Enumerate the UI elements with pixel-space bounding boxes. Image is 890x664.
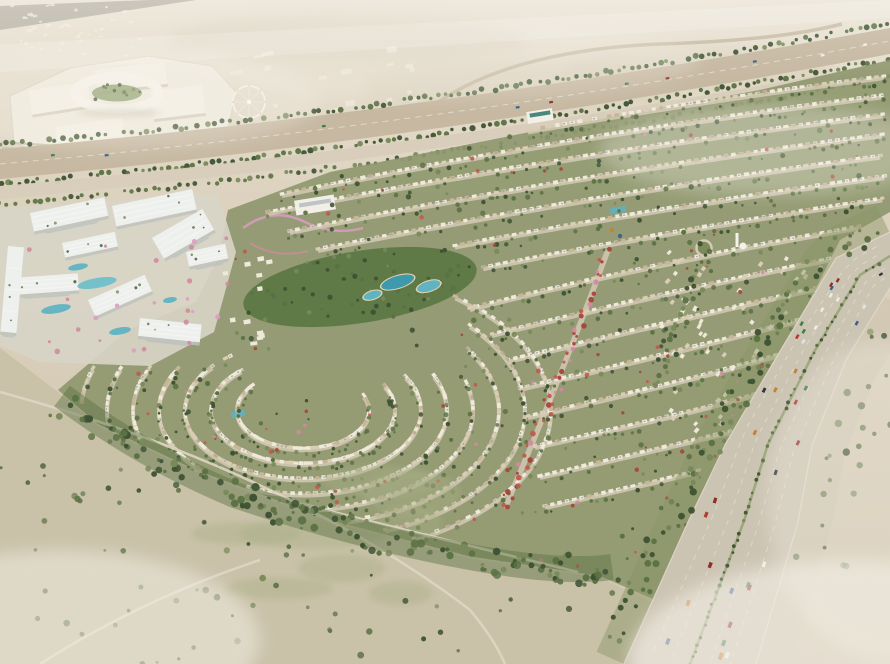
tree xyxy=(337,214,341,218)
tree xyxy=(528,474,533,479)
tree xyxy=(249,336,254,341)
tree xyxy=(656,269,660,273)
avenue-tree xyxy=(33,199,38,204)
tree xyxy=(103,549,106,552)
tree xyxy=(346,444,348,446)
tree xyxy=(529,562,535,568)
flowering-tree xyxy=(596,353,599,356)
villa-roof-detail xyxy=(866,200,868,202)
tree xyxy=(592,124,596,128)
villa xyxy=(633,189,638,193)
tree xyxy=(287,544,292,549)
tree xyxy=(357,200,361,204)
highway-tree xyxy=(374,101,380,107)
tree xyxy=(186,435,189,438)
tree xyxy=(596,316,601,321)
tree xyxy=(583,283,586,286)
tree xyxy=(287,237,290,240)
roadside-tree xyxy=(757,370,763,376)
tree xyxy=(565,552,572,559)
pink-tree xyxy=(132,348,136,352)
pink-tree xyxy=(76,327,81,332)
villa xyxy=(648,187,653,192)
tree xyxy=(625,367,629,371)
flowering-tree xyxy=(547,394,551,398)
tree xyxy=(457,649,460,652)
flowering-tree xyxy=(575,501,579,505)
tree xyxy=(203,475,208,480)
avenue-tree xyxy=(284,170,288,174)
roadside-tree xyxy=(848,234,852,238)
roadside-tree xyxy=(758,352,763,357)
villa xyxy=(323,460,328,464)
tree xyxy=(505,331,510,336)
highway-tree xyxy=(675,92,680,97)
tree xyxy=(470,419,474,423)
tree xyxy=(340,465,344,469)
villa xyxy=(725,95,730,100)
villa xyxy=(279,460,284,464)
tree xyxy=(505,338,507,340)
tree xyxy=(394,421,397,424)
median-tree xyxy=(732,544,736,548)
avenue-tree xyxy=(333,165,337,169)
spine-tree xyxy=(652,382,658,388)
tree xyxy=(609,404,613,408)
tree xyxy=(557,161,561,165)
tree xyxy=(253,441,256,444)
tree xyxy=(275,518,283,526)
tree xyxy=(575,580,583,588)
tree xyxy=(494,249,499,254)
highway-tree xyxy=(338,107,344,113)
tree xyxy=(231,500,239,508)
tree xyxy=(354,249,357,252)
tree xyxy=(293,196,296,199)
tree xyxy=(116,386,119,389)
avenue-tree xyxy=(324,165,328,169)
tree xyxy=(719,230,723,234)
highway-tree xyxy=(745,82,750,87)
tree xyxy=(527,299,531,303)
tree xyxy=(500,557,505,562)
tree xyxy=(515,155,518,158)
tree xyxy=(525,191,528,194)
tree xyxy=(211,417,214,420)
tree xyxy=(504,157,507,160)
villa xyxy=(637,210,642,215)
highway-tree xyxy=(96,173,100,177)
tree xyxy=(477,465,481,469)
tree xyxy=(407,173,411,177)
pink-tree xyxy=(186,297,190,301)
roadside-tree xyxy=(678,513,685,520)
highway-tree xyxy=(469,125,475,131)
roadside-tree xyxy=(720,401,725,406)
villa xyxy=(547,421,552,426)
flowering-tree xyxy=(476,169,480,173)
tree xyxy=(573,229,577,233)
highway-tree xyxy=(320,146,324,150)
villa-roof-detail xyxy=(322,492,324,494)
tree xyxy=(566,147,570,151)
tree xyxy=(286,516,292,522)
roadside-tree xyxy=(804,286,809,291)
median-tree xyxy=(820,338,823,341)
tree xyxy=(602,569,608,575)
median-tree xyxy=(849,290,852,293)
tree xyxy=(516,552,523,559)
tree xyxy=(499,146,502,149)
roadside-tree xyxy=(776,307,781,312)
tree xyxy=(444,412,449,417)
tree xyxy=(541,259,544,262)
tree xyxy=(500,304,503,307)
highway-tree xyxy=(756,79,760,83)
villa xyxy=(813,206,819,210)
highway-tree xyxy=(628,100,633,105)
tree xyxy=(494,477,498,481)
tree xyxy=(471,474,473,476)
tree xyxy=(656,453,659,456)
tree xyxy=(435,604,439,608)
flowering-tree xyxy=(585,373,590,378)
flowering-tree xyxy=(579,309,583,313)
villa xyxy=(509,165,514,169)
median-tree xyxy=(786,400,790,404)
median-tree xyxy=(815,344,818,347)
tree xyxy=(359,451,363,455)
tree xyxy=(256,445,259,448)
tree xyxy=(149,371,153,375)
tree xyxy=(386,180,389,183)
flowering-tree xyxy=(335,500,339,504)
tree xyxy=(237,406,240,409)
tree xyxy=(698,292,701,295)
tree xyxy=(664,238,667,241)
tree xyxy=(134,415,139,420)
roadside-tree xyxy=(651,539,657,545)
tree xyxy=(510,370,512,372)
flowering-tree xyxy=(368,414,371,417)
tree xyxy=(43,474,46,477)
flowering-tree xyxy=(557,376,561,380)
villa xyxy=(131,411,134,415)
minaret xyxy=(736,233,739,247)
tree xyxy=(113,434,120,441)
tree xyxy=(834,212,837,215)
villa xyxy=(621,238,626,242)
flowering-tree xyxy=(595,270,599,274)
tree xyxy=(464,365,467,368)
tree xyxy=(193,445,196,448)
villa-roof-detail xyxy=(881,94,883,96)
highway-tree xyxy=(763,78,767,82)
tree xyxy=(660,482,664,486)
roadside-tree xyxy=(676,524,680,528)
tree xyxy=(534,511,537,514)
highway-tree xyxy=(510,119,514,123)
tree xyxy=(446,422,451,427)
flowering-tree xyxy=(420,215,424,219)
spine-tree xyxy=(671,326,676,331)
tree xyxy=(577,379,580,382)
highway-tree xyxy=(770,79,774,83)
avenue-tree xyxy=(311,168,316,173)
tree xyxy=(336,526,343,533)
tree xyxy=(679,417,682,420)
highway-tree xyxy=(501,120,507,126)
tree xyxy=(446,552,453,559)
tree xyxy=(700,378,704,382)
tree xyxy=(423,454,428,459)
villa xyxy=(302,447,306,450)
avenue-tree xyxy=(136,187,141,192)
tree xyxy=(695,382,700,387)
tree xyxy=(394,535,400,541)
roadside-tree xyxy=(764,339,771,346)
tree xyxy=(700,415,703,418)
tree xyxy=(595,500,599,504)
flowering-tree xyxy=(559,369,564,374)
median-tree xyxy=(834,315,837,318)
tree xyxy=(585,187,588,190)
villa-roof-detail xyxy=(298,477,300,478)
tree xyxy=(490,306,495,311)
villa xyxy=(844,79,849,83)
tree xyxy=(703,234,706,237)
tree xyxy=(416,232,421,237)
tree xyxy=(108,392,112,396)
median-tree xyxy=(785,407,789,411)
villa xyxy=(658,232,663,237)
tower xyxy=(12,273,79,299)
tree xyxy=(681,230,686,235)
median-tree xyxy=(742,519,745,522)
tree xyxy=(598,224,603,229)
tree xyxy=(464,202,468,206)
avenue-tree xyxy=(104,192,108,196)
tree xyxy=(344,448,347,451)
median-tree xyxy=(790,394,793,397)
flowering-tree xyxy=(621,411,624,414)
villa xyxy=(815,83,820,87)
roadside-tree xyxy=(647,589,652,594)
tree xyxy=(593,456,596,459)
highway-tree xyxy=(437,131,442,136)
villa xyxy=(435,178,440,182)
car xyxy=(105,154,109,157)
tree xyxy=(772,204,776,208)
tree xyxy=(566,606,572,612)
flowering-tree xyxy=(275,448,279,452)
tree xyxy=(445,192,448,195)
roadside-tree xyxy=(622,631,626,635)
tree xyxy=(241,336,245,340)
tree xyxy=(614,437,617,440)
tree xyxy=(406,194,411,199)
tree xyxy=(697,230,700,233)
flowering-tree xyxy=(588,297,594,303)
tree xyxy=(217,479,224,486)
villa xyxy=(526,230,531,234)
tree xyxy=(759,303,763,307)
tree xyxy=(544,481,547,484)
flowering-tree xyxy=(646,380,649,383)
tree xyxy=(273,583,279,589)
pink-tree xyxy=(215,314,220,319)
roadside-tree xyxy=(641,588,645,592)
villa xyxy=(284,476,289,479)
tree xyxy=(540,294,544,298)
median-tree xyxy=(803,369,807,373)
spine-tree xyxy=(694,269,698,273)
highway-tree xyxy=(288,151,292,155)
villa xyxy=(696,100,701,104)
villa xyxy=(497,409,501,414)
villa xyxy=(496,415,500,421)
flowering-tree xyxy=(575,335,578,338)
tree xyxy=(411,539,419,547)
tree xyxy=(457,207,462,212)
flowering-tree xyxy=(204,441,207,444)
roadside-tree xyxy=(722,406,729,413)
villa xyxy=(568,178,573,182)
tree xyxy=(449,438,453,442)
tree xyxy=(523,265,527,269)
tree xyxy=(280,200,283,203)
villa xyxy=(827,100,832,104)
tree xyxy=(758,250,763,255)
tree xyxy=(589,250,594,255)
median-tree xyxy=(774,426,777,429)
tree xyxy=(314,191,318,195)
tree xyxy=(507,318,511,322)
tree xyxy=(501,567,507,573)
pink-tree xyxy=(154,258,159,263)
community-masterplan-render xyxy=(0,0,890,664)
tree xyxy=(416,402,419,405)
highway-tree xyxy=(520,118,523,121)
villa xyxy=(288,445,293,449)
tree xyxy=(696,264,698,266)
tree xyxy=(140,382,145,387)
villa xyxy=(718,97,723,101)
tree xyxy=(503,409,508,414)
villa xyxy=(605,172,610,177)
avenue-tree xyxy=(96,193,99,196)
tree xyxy=(109,426,113,430)
highway-tree xyxy=(354,106,358,110)
tree xyxy=(597,163,601,167)
villa xyxy=(310,446,316,450)
tree xyxy=(494,504,497,507)
tree xyxy=(244,456,247,459)
roadside-tree xyxy=(661,530,666,535)
tree xyxy=(402,212,405,215)
tree xyxy=(350,549,354,553)
tree xyxy=(298,516,306,524)
roadside-tree xyxy=(828,247,834,253)
highway-tree xyxy=(648,99,652,103)
median-tree xyxy=(768,439,771,442)
tree xyxy=(251,483,259,491)
tree xyxy=(447,165,452,170)
tree xyxy=(410,391,415,396)
villa xyxy=(615,214,620,218)
tree xyxy=(364,546,368,550)
tree xyxy=(587,343,592,348)
spine-tree xyxy=(674,352,679,357)
tree xyxy=(504,267,507,270)
highway-tree xyxy=(558,112,563,117)
villa xyxy=(563,223,568,227)
tree xyxy=(312,454,316,458)
tree xyxy=(214,398,218,402)
tree xyxy=(330,227,334,231)
tree xyxy=(731,252,736,257)
tree xyxy=(499,609,502,612)
tree xyxy=(282,468,285,471)
tree xyxy=(648,269,652,273)
flowering-tree xyxy=(531,380,534,383)
tree xyxy=(165,436,169,440)
tree xyxy=(445,403,449,407)
tree xyxy=(525,359,529,363)
tree xyxy=(331,453,334,456)
tree xyxy=(494,353,497,356)
tree xyxy=(181,419,184,422)
tree xyxy=(540,449,544,453)
tree xyxy=(468,352,471,355)
villa xyxy=(496,397,500,402)
roadside-tree xyxy=(770,315,775,320)
tree xyxy=(604,497,609,502)
villa-roof-detail xyxy=(285,446,287,448)
tree xyxy=(235,331,239,335)
tree xyxy=(271,458,275,462)
tree xyxy=(609,590,615,596)
tree xyxy=(574,369,579,374)
tree xyxy=(459,167,462,170)
tree xyxy=(48,414,52,418)
tree xyxy=(520,213,523,216)
tree xyxy=(415,344,419,348)
avenue-tree xyxy=(289,170,293,174)
tree xyxy=(637,283,640,286)
highway-tree xyxy=(585,110,589,114)
tree xyxy=(145,466,151,472)
highway-tree xyxy=(381,103,386,108)
tree xyxy=(507,219,512,224)
pink-tree xyxy=(187,278,192,283)
tree xyxy=(598,179,602,183)
tree xyxy=(779,97,784,102)
tree xyxy=(194,389,198,393)
tree xyxy=(553,576,557,580)
tree xyxy=(42,518,48,524)
villa-roof-detail xyxy=(447,409,448,411)
tree xyxy=(124,444,128,448)
tree xyxy=(564,128,568,132)
tree xyxy=(837,197,840,200)
roadside-tree xyxy=(721,422,725,426)
villa xyxy=(644,108,649,113)
tree xyxy=(367,238,371,242)
flowering-tree xyxy=(543,169,546,172)
roadside-tree xyxy=(634,604,638,608)
tree xyxy=(599,204,602,207)
